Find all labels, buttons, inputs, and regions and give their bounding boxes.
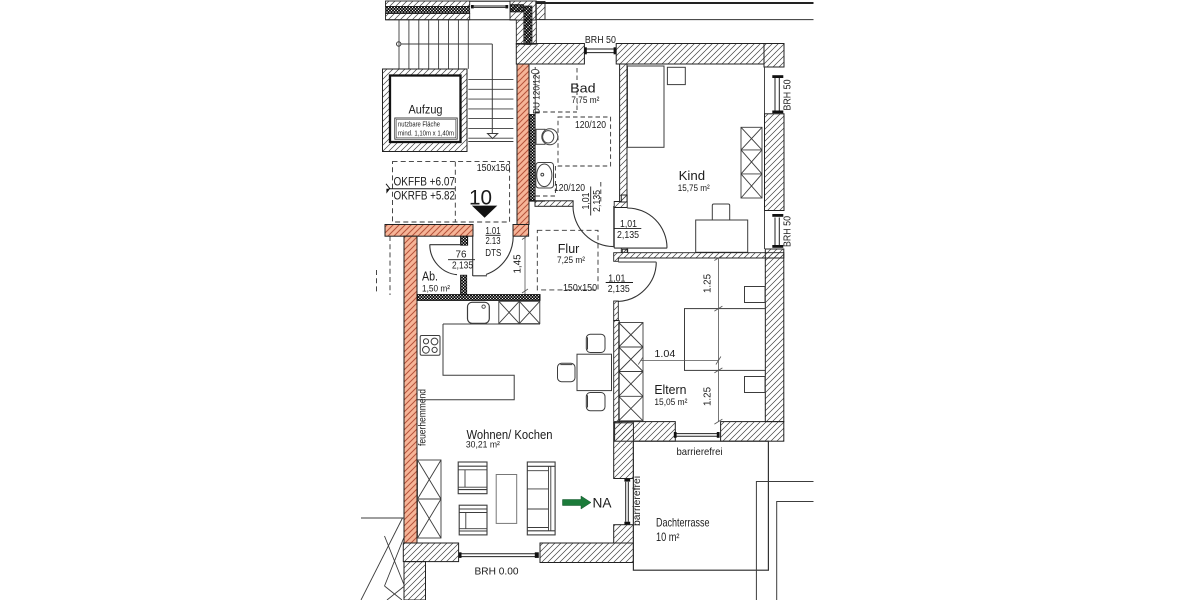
- svg-text:7,75 m²: 7,75 m²: [571, 95, 599, 106]
- svg-text:1,50 m²: 1,50 m²: [422, 284, 450, 295]
- svg-text:120/120: 120/120: [575, 120, 606, 131]
- svg-text:1.04: 1.04: [654, 348, 675, 360]
- svg-text:Dachterrasse: Dachterrasse: [656, 515, 710, 529]
- svg-text:2.13: 2.13: [486, 235, 501, 247]
- svg-text:2,135: 2,135: [608, 283, 630, 295]
- svg-text:10 m²: 10 m²: [656, 532, 680, 544]
- svg-text:BRH 50: BRH 50: [783, 216, 794, 247]
- svg-text:Aufzug: Aufzug: [409, 105, 443, 117]
- svg-text:feuerhemmend: feuerhemmend: [418, 389, 429, 446]
- svg-text:DU 120/120: DU 120/120: [531, 70, 542, 114]
- svg-text:BRH 50: BRH 50: [585, 35, 616, 46]
- svg-text:7,25 m²: 7,25 m²: [557, 255, 585, 266]
- svg-text:OKRFB +5.82: OKRFB +5.82: [394, 188, 456, 202]
- svg-text:30,21 m²: 30,21 m²: [466, 440, 500, 451]
- svg-text:Kind: Kind: [679, 169, 706, 183]
- svg-text:nutzbare Fläche: nutzbare Fläche: [398, 121, 440, 128]
- svg-text:Eltern: Eltern: [654, 383, 686, 397]
- svg-text:barrierefrei: barrierefrei: [631, 476, 643, 526]
- svg-text:2,135: 2,135: [617, 229, 639, 241]
- svg-text:mind. 1,10m x 1,40m: mind. 1,10m x 1,40m: [398, 130, 454, 137]
- svg-text:OKFFB +6.07: OKFFB +6.07: [394, 174, 456, 188]
- svg-text:Bad: Bad: [570, 81, 596, 95]
- svg-text:150x150: 150x150: [563, 283, 597, 294]
- svg-text:150x150: 150x150: [477, 163, 511, 174]
- svg-text:DTS: DTS: [485, 247, 501, 259]
- svg-text:BRH 50: BRH 50: [783, 79, 794, 110]
- svg-text:Ab.: Ab.: [422, 270, 438, 284]
- svg-text:15,75 m²: 15,75 m²: [678, 183, 710, 194]
- svg-text:120/120: 120/120: [554, 183, 585, 194]
- svg-text:1.25: 1.25: [702, 274, 714, 293]
- svg-text:BRH 0.00: BRH 0.00: [475, 566, 519, 578]
- svg-text:barrierefrei: barrierefrei: [677, 446, 723, 458]
- svg-text:1.25: 1.25: [702, 387, 714, 406]
- svg-text:NA: NA: [593, 495, 613, 511]
- svg-text:2,135: 2,135: [452, 260, 473, 272]
- svg-text:1,45: 1,45: [511, 254, 523, 273]
- svg-text:15,05 m²: 15,05 m²: [654, 397, 687, 408]
